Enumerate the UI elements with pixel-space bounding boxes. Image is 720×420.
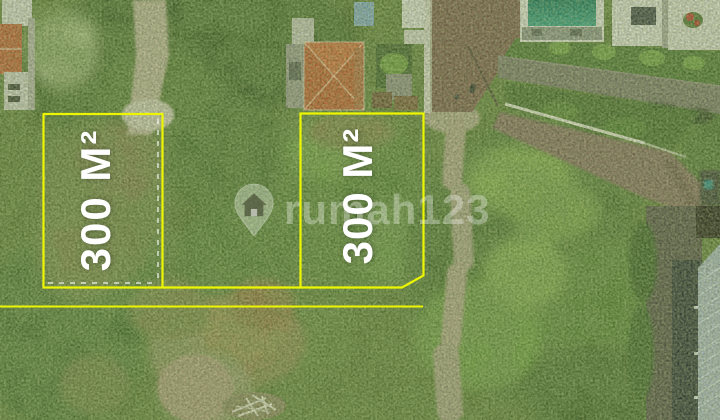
right-plot-area-label: 300 M² [337, 128, 379, 265]
aerial-photo: 300 M² 300 M² rumah123 [0, 0, 720, 420]
left-plot-area-label: 300 M² [75, 129, 117, 272]
